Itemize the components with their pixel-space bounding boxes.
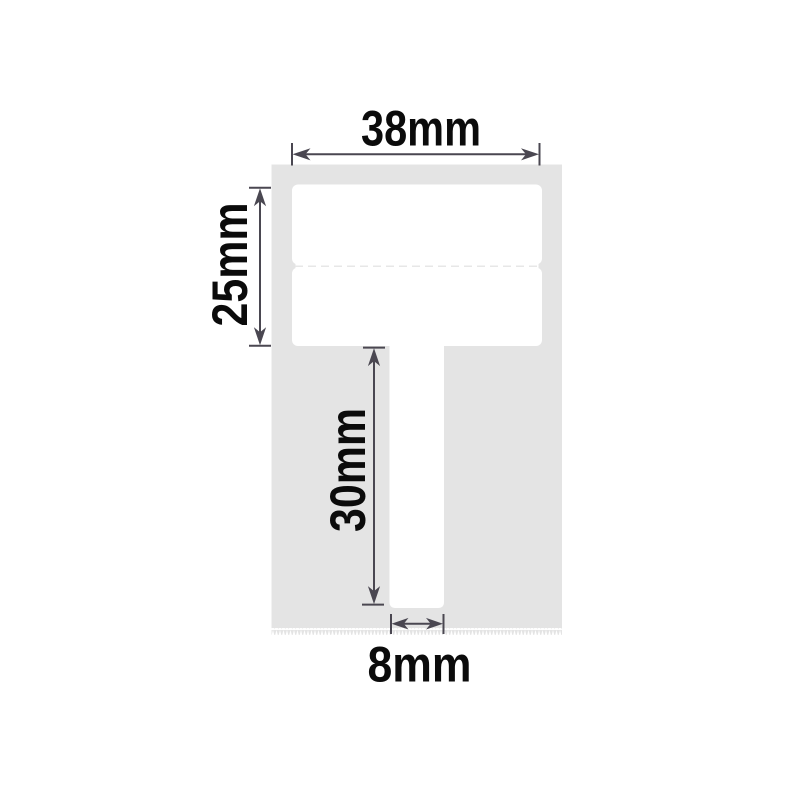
svg-text:38mm: 38mm bbox=[361, 101, 481, 157]
svg-text:30mm: 30mm bbox=[320, 408, 376, 532]
svg-text:8mm: 8mm bbox=[368, 636, 472, 692]
svg-text:25mm: 25mm bbox=[202, 203, 258, 327]
